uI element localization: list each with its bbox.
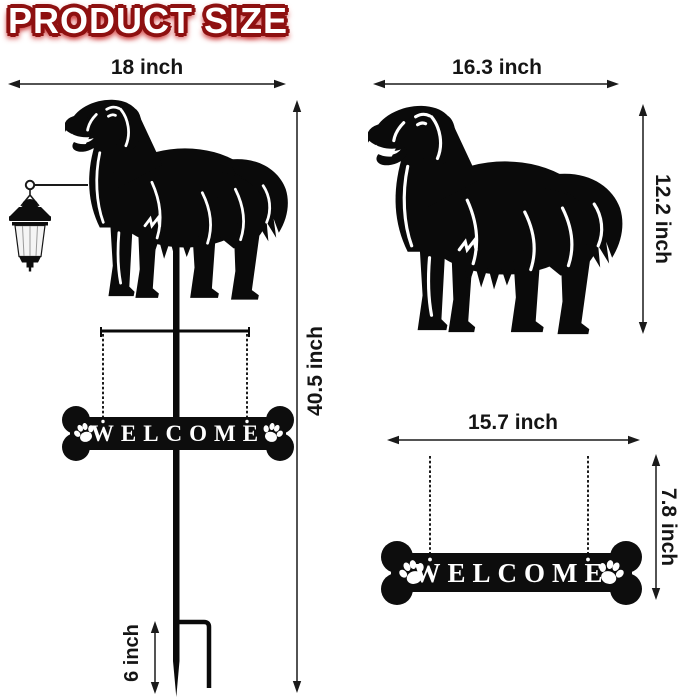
dimension-label-ground-stake-depth: 6 inch — [119, 598, 145, 700]
dim-ground-stake-depth — [151, 621, 159, 694]
dimension-label-full-stake-height: 40.5 inch — [303, 301, 329, 441]
page-title: PRODUCT SIZE — [8, 0, 288, 42]
dimension-label-welcome-sign-width: 15.7 inch — [433, 410, 593, 436]
dimension-label-dog-panel-width: 16.3 inch — [417, 55, 577, 81]
lantern-icon — [9, 199, 51, 272]
dimension-label-dog-panel-height: 12.2 inch — [649, 149, 675, 289]
dimension-label-full-stake-width: 18 inch — [57, 55, 237, 81]
dim-full-stake-width — [8, 80, 286, 88]
left-stake-assembly — [9, 93, 294, 697]
welcome-sign-text: WELCOME — [78, 419, 278, 448]
stake-prong — [176, 622, 209, 688]
product-size-diagram: PRODUCT SIZE 18 inch 40.5 inch 6 inch 16… — [0, 0, 679, 700]
ground-stake — [173, 240, 180, 697]
dimension-label-welcome-sign-height: 7.8 inch — [655, 457, 679, 597]
dim-welcome-sign-width — [387, 436, 640, 444]
diagram-art — [0, 0, 679, 700]
dim-dog-panel-width — [373, 80, 619, 88]
dog-silhouette — [367, 98, 623, 334]
welcome-sign-text: WELCOME — [401, 557, 622, 590]
dim-full-stake-height — [293, 100, 301, 693]
hanging-chain — [430, 456, 588, 557]
dim-dog-panel-height — [639, 104, 647, 334]
